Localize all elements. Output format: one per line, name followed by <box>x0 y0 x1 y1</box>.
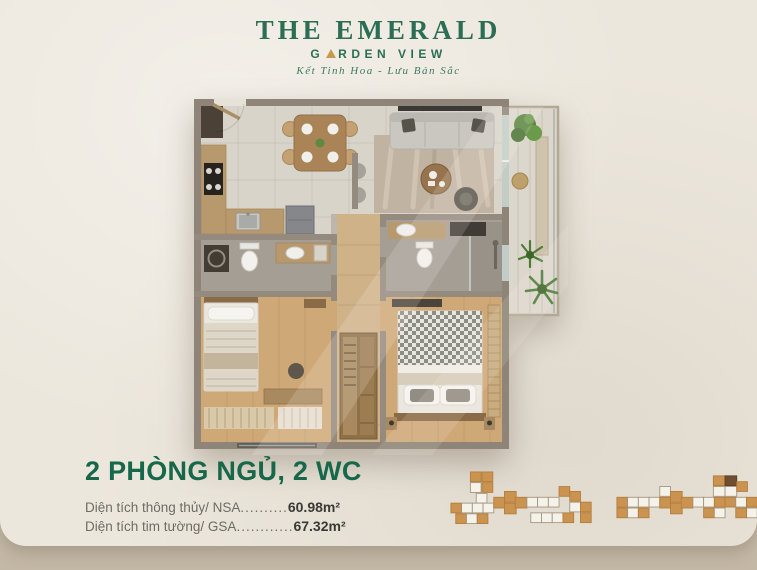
dot-leader: ............ <box>236 519 293 534</box>
area-label: Diện tích tim tường/ GSA <box>85 519 236 534</box>
brand-header: THE EMERALD GRDEN VIEW Kết Tinh Hoa - Lư… <box>0 15 757 77</box>
floor-plan <box>192 95 568 455</box>
table-plant <box>316 139 325 148</box>
subtitle-text-left: G <box>310 47 324 61</box>
living-wall-stub <box>352 153 358 209</box>
floor-plan-svg <box>192 95 568 455</box>
shelf <box>304 299 326 308</box>
page-background: THE EMERALD GRDEN VIEW Kết Tinh Hoa - Lư… <box>0 0 757 570</box>
keyplan-right <box>614 470 757 546</box>
gold-triangle-icon <box>326 49 336 58</box>
pillow <box>208 307 254 320</box>
unit-title: 2 PHÒNG NGỦ, 2 WC <box>85 456 425 487</box>
cooktop <box>204 163 223 195</box>
area-row-gsa: Diện tích tim tường/ GSA............67.3… <box>85 517 425 536</box>
entry-opening <box>214 99 246 106</box>
brand-tagline: Kết Tinh Hoa - Lưu Bản Sắc <box>0 65 757 77</box>
shower-head <box>493 240 499 246</box>
keyplans <box>448 470 757 546</box>
brand-subtitle: GRDEN VIEW <box>0 47 757 61</box>
balcony-bench <box>536 137 548 255</box>
area-value: 67.32m² <box>293 518 345 534</box>
bathroom-window <box>502 245 509 281</box>
brochure-card: THE EMERALD GRDEN VIEW Kết Tinh Hoa - Lư… <box>0 0 757 546</box>
bed-headboard <box>204 297 258 303</box>
balcony-table <box>512 173 528 189</box>
tv <box>398 106 482 111</box>
area-label: Diện tích thông thủy/ NSA <box>85 500 240 515</box>
entry-cabinet <box>201 106 223 138</box>
highlighted-unit <box>725 476 737 486</box>
bed-throw <box>204 353 258 369</box>
unit-info: 2 PHÒNG NGỦ, 2 WC Diện tích thông thủy/ … <box>85 456 425 536</box>
brand-title: THE EMERALD <box>0 15 757 46</box>
keyplan-left <box>448 470 598 546</box>
dining-area <box>283 115 358 171</box>
toilet <box>242 251 258 271</box>
area-row-nsa: Diện tích thông thủy/ NSA..........60.98… <box>85 498 425 517</box>
subtitle-text-right: RDEN VIEW <box>338 47 447 61</box>
area-rows: Diện tích thông thủy/ NSA..........60.98… <box>85 498 425 536</box>
dot-leader: .......... <box>240 500 288 515</box>
area-value: 60.98m² <box>288 499 340 515</box>
stool <box>288 363 304 379</box>
mirror <box>314 245 327 261</box>
